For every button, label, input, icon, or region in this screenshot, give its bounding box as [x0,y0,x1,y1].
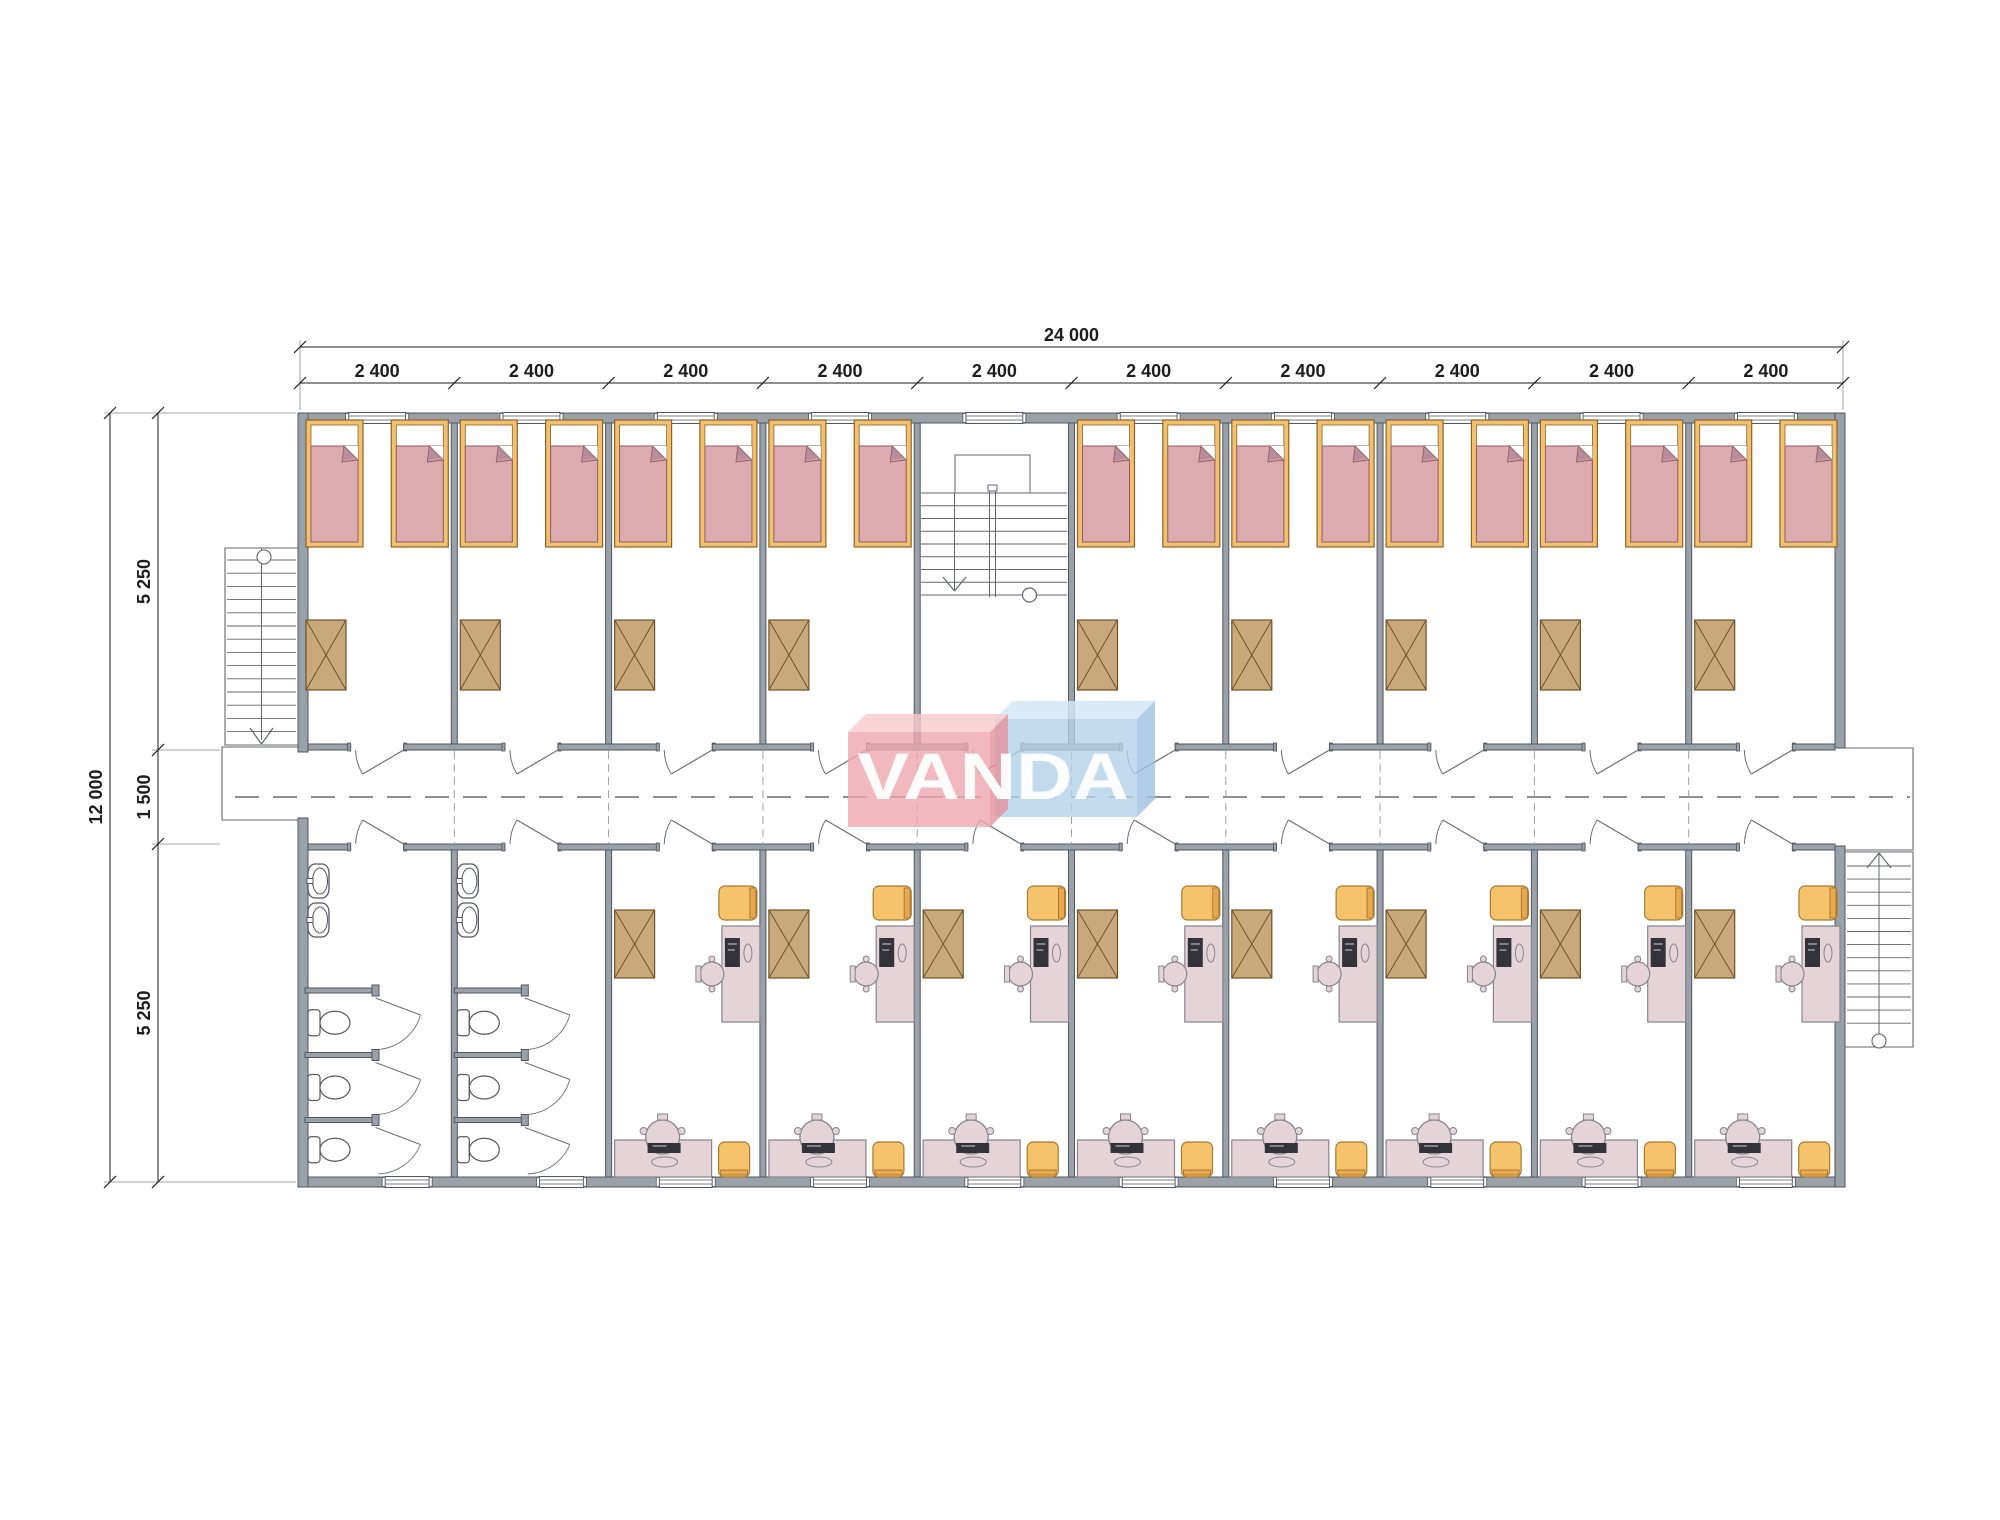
computer-screen [802,1143,835,1153]
stall-door-arc [379,1145,421,1175]
orange-chair [719,1142,750,1177]
wardrobe-table [306,620,346,690]
stair-start-circle [1023,588,1037,602]
corridor-wall-north [1175,744,1276,750]
bed [769,420,826,547]
window-south [1739,1177,1792,1188]
orange-chair [719,886,757,920]
chair-headrest [1738,1114,1748,1120]
door-jamb [1428,743,1431,751]
corridor-wall-south [1484,844,1585,850]
stall-door-arc [528,1015,570,1050]
dimension-label-depth-segment: 1 500 [134,774,154,819]
door-jamb [1273,743,1276,751]
window-jamb [1484,1178,1487,1187]
chair-back [721,1170,748,1175]
chair-back [1467,966,1472,982]
corridor-wall-north [558,744,659,750]
desk-vertical [722,926,760,1022]
door-leaf-top-room [1597,750,1638,774]
window-jamb [583,1178,586,1187]
corridor-wall-south [308,844,351,850]
corridor-wall-south [712,844,813,850]
window-jamb [1175,1178,1178,1187]
stair-down-arrow [250,728,262,744]
computer-screen [1111,1143,1144,1153]
door-swing-arc [510,820,517,844]
stair-start-circle [1872,1034,1886,1048]
bathroom [454,864,570,1174]
bed [700,420,757,547]
chair-headrest [966,1114,976,1120]
toilet [308,1137,350,1163]
chair-headrest [1429,1114,1439,1120]
door-swing-arc [1281,750,1288,774]
door-jamb [502,743,505,751]
keyboard [1423,1157,1449,1167]
partition-wall-bottom-row [451,850,457,1177]
window-jamb [1023,414,1026,423]
stall-door-arc [379,1080,421,1115]
bed [1078,420,1135,547]
chair-headrest [1583,1114,1593,1120]
keyboard [1361,944,1369,962]
stall-partition [305,1118,375,1123]
keyboard [1670,944,1678,962]
toilet [308,1010,350,1036]
door-jamb [656,843,659,851]
floor-plan-canvas: 24 0002 4002 4002 4002 4002 4002 4002 40… [0,0,2000,1520]
chair-back [1159,966,1164,982]
stall-door-arc [528,1080,570,1115]
keyboard [806,1157,832,1167]
wardrobe-table [1540,910,1580,978]
orange-chair [1028,886,1066,920]
door-jamb [1428,843,1431,851]
window-south [814,1177,867,1188]
chair-back [1830,888,1836,918]
corridor-wall-north [1638,744,1739,750]
orange-chair [1336,886,1374,920]
door-jamb [1736,743,1739,751]
keyboard [1269,1157,1295,1167]
keyboard [1732,1157,1758,1167]
window-jamb [382,1178,385,1187]
door-leaf-bottom-room [1288,820,1329,844]
window-jamb [429,1178,432,1187]
door-swing-arc [1281,820,1288,844]
partition-wall-bottom-row [1223,850,1229,1177]
partition-wall-bottom-row [760,850,766,1177]
chair-back [1005,966,1010,982]
wardrobe-table [1386,620,1426,690]
partition-wall-top-row [760,423,766,744]
chair-back [1059,888,1065,918]
floor-plan: 24 0002 4002 4002 4002 4002 4002 4002 40… [0,0,2000,1520]
door-swing-arc [1436,750,1443,774]
desk-vertical [1031,926,1069,1022]
chair-back [1676,888,1682,918]
stall-door-post [521,1115,528,1126]
chair-back [1801,1170,1828,1175]
bed [1386,420,1443,547]
corridor-wall-north [712,744,813,750]
chair-back [1776,966,1781,982]
window-jamb [1428,1178,1431,1187]
desk-bottom [1695,1114,1792,1177]
stair-start-circle [257,550,271,564]
dimension-label-module: 2 400 [1589,361,1634,381]
dimension-label-total-width: 24 000 [1044,325,1099,345]
chair-back [1646,1170,1673,1175]
office-chair [1313,956,1341,992]
sink-tap [456,918,462,923]
stall-partition [305,1053,375,1058]
dimension-label-module: 2 400 [972,361,1017,381]
window-jamb [811,1178,814,1187]
sink-tap [307,918,313,923]
stair-down-arrow [943,577,955,591]
stall-door-post [521,985,528,996]
office-chair [850,956,878,992]
wardrobe-table [769,620,809,690]
stall-partition [454,1118,524,1123]
dimension-label-depth-segment: 5 250 [134,990,154,1035]
corridor-wall-north [404,744,505,750]
orange-chair [1490,886,1528,920]
window-jamb [712,1178,715,1187]
wardrobe-table [1232,620,1272,690]
door-leaf-top-room [1288,750,1329,774]
window-jamb [1638,1178,1641,1187]
orange-chair [1644,1142,1675,1177]
stall-partition [454,1053,524,1058]
stall-door-leaf [525,1128,570,1145]
dimension-label-depth-segment: 5 250 [134,559,154,604]
window-south [659,1177,712,1188]
chair-back [904,888,910,918]
stall-door-leaf [525,1063,570,1080]
dimension-label-total-depth: 12 000 [86,769,106,824]
window-south [385,1177,429,1188]
dimension-label-module: 2 400 [1280,361,1325,381]
door-jamb [811,743,814,751]
vanda-logo: VANDA [848,701,1155,827]
stall-door-post [521,1050,528,1061]
dimension-label-module: 2 400 [663,361,708,381]
orange-chair [1182,886,1220,920]
computer-screen [1805,938,1820,967]
keyboard [744,944,752,962]
bed [1540,420,1597,547]
dimension-label-module: 2 400 [1743,361,1788,381]
logo-text: VANDA [857,739,1129,813]
window-jamb [1736,1178,1739,1187]
partition-wall-top-row [914,423,920,744]
window-south [968,1177,1021,1188]
chair-back [1338,1170,1365,1175]
partition-wall-bottom-row [606,850,612,1177]
bed [1695,420,1752,547]
door-swing-arc [1744,750,1751,774]
orange-chair [1799,1142,1830,1177]
chair-back [1521,888,1527,918]
bed [391,420,448,547]
door-leaf-top-room [1443,750,1484,774]
office-chair [1159,956,1187,992]
wardrobe-table [615,620,655,690]
computer-screen [648,1143,681,1153]
computer-screen [1573,1143,1606,1153]
sink [307,864,329,898]
keyboard [960,1157,986,1167]
door-jamb [1119,843,1122,851]
door-swing-arc [1744,820,1751,844]
toilet [457,1137,499,1163]
door-jamb [811,843,814,851]
desk-bottom [1078,1114,1175,1177]
orange-chair [1182,1142,1213,1177]
window-jamb [1021,1178,1024,1187]
keyboard [1053,944,1061,962]
door-leaf-bottom-room [1751,820,1792,844]
computer-screen [1651,938,1666,967]
door-jamb [656,743,659,751]
chair-back [1029,1170,1056,1175]
window-jamb [965,1178,968,1187]
keyboard [1515,944,1523,962]
partition-wall-bottom-row [1069,850,1075,1177]
desk-bottom [1386,1114,1483,1177]
stall-door-leaf [376,1128,421,1145]
chair-back [850,966,855,982]
chair-back [875,1170,902,1175]
stall-door-post [372,1050,379,1061]
computer-screen [879,938,894,967]
chair-back [1622,966,1627,982]
door-swing-arc [819,820,826,844]
stair-down-arrow [955,577,967,591]
corridor-wall-south [404,844,505,850]
corridor-wall-south [1638,844,1739,850]
partition-wall-top-row [1223,423,1229,744]
door-jamb [1273,843,1276,851]
chair-back [1492,1170,1519,1175]
wardrobe-table [1078,910,1118,978]
office-chair [696,956,724,992]
wardrobe-table [1540,620,1580,690]
chair-headrest [1275,1114,1285,1120]
stair-down-arrow [262,728,274,744]
bed [1780,420,1837,547]
wardrobe-table [1695,620,1735,690]
office-chair [1622,956,1650,992]
keyboard [1577,1157,1603,1167]
chair-back [696,966,701,982]
computer-screen [1419,1143,1452,1153]
chair-back [1367,888,1373,918]
partition-wall-top-row [451,423,457,744]
partition-wall-top-row [1531,423,1537,744]
stall-door-arc [528,1145,570,1175]
partition-wall-top-row [1686,423,1692,744]
door-jamb [1582,843,1585,851]
door-jamb [348,743,351,751]
stall-door-leaf [376,1063,421,1080]
window-north [966,413,1023,424]
desk-bottom [769,1114,866,1177]
orange-chair [873,1142,904,1177]
partition-wall-bottom-row [1531,850,1537,1177]
corridor-wall-north [308,744,351,750]
corridor-wall-north [1792,744,1835,750]
door-swing-arc [664,820,671,844]
dimension-label-module: 2 400 [818,361,863,381]
toilet [457,1010,499,1036]
door-swing-arc [356,750,363,774]
door-jamb [965,843,968,851]
desk-bottom [1232,1114,1329,1177]
corridor-wall-south [1175,844,1276,850]
door-swing-arc [1590,820,1597,844]
corridor-wall-north [1329,744,1430,750]
entry-landing-right [1845,748,1913,850]
door-jamb [348,843,351,851]
dimension-label-module: 2 400 [509,361,554,381]
dimension-label-module: 2 400 [1126,361,1171,381]
desk-bottom [1540,1114,1637,1177]
window-jamb [867,1178,870,1187]
wardrobe-table [1386,910,1426,978]
wardrobe-table [769,910,809,978]
stall-partition [305,988,375,993]
corridor-wall-south [867,844,968,850]
window-south [539,1177,583,1188]
door-swing-arc [664,750,671,774]
keyboard [1207,944,1215,962]
stall-door-post [372,1115,379,1126]
bed [546,420,603,547]
chair-headrest [658,1114,668,1120]
wardrobe-table [1695,910,1735,978]
orange-chair [1027,1142,1058,1177]
desk-vertical [1802,926,1840,1022]
exterior-stair-right [1845,748,1913,1048]
bathroom [305,864,421,1174]
bed [1471,420,1528,547]
partition-wall-bottom-row [1377,850,1383,1177]
office-chair [1776,956,1804,992]
window-jamb [963,414,966,423]
computer-screen [1728,1143,1761,1153]
door-swing-arc [356,820,363,844]
computer-screen [1265,1143,1298,1153]
wardrobe-table [460,620,500,690]
door-jamb [1736,843,1739,851]
orange-chair [873,886,911,920]
exterior-stair-left [222,548,298,820]
window-jamb [1273,1178,1276,1187]
wardrobe-table [1078,620,1118,690]
chair-back [750,888,756,918]
office-chair [1005,956,1033,992]
bed [306,420,363,547]
corridor-wall-south [1792,844,1835,850]
door-swing-arc [1590,750,1597,774]
door-leaf-top-room [671,750,712,774]
door-swing-arc [1436,820,1443,844]
stall-partition [454,988,524,993]
sink [307,903,329,937]
computer-screen [1342,938,1357,967]
bed [1626,420,1683,547]
window-south [1585,1177,1638,1188]
window-jamb [1119,1178,1122,1187]
computer-screen [956,1143,989,1153]
corridor-wall-south [558,844,659,850]
door-leaf-bottom-room [1443,820,1484,844]
window-jamb [1792,1178,1795,1187]
sink [456,864,478,898]
desk-vertical [1493,926,1531,1022]
window-south [1431,1177,1484,1188]
keyboard [1115,1157,1141,1167]
orange-chair [1336,1142,1367,1177]
bed [1317,420,1374,547]
desk-vertical [876,926,914,1022]
bed [615,420,672,547]
door-leaf-top-room [363,750,404,774]
keyboard [652,1157,678,1167]
computer-screen [725,938,740,967]
bed [1232,420,1289,547]
door-leaf-bottom-room [671,820,712,844]
wardrobe-table [615,910,655,978]
stall-door-post [372,985,379,996]
bed [460,420,517,547]
wardrobe-table [1232,910,1272,978]
corridor-wall-south [1329,844,1430,850]
computer-screen [1188,938,1203,967]
toilet [457,1075,499,1101]
chair-headrest [1121,1114,1131,1120]
chair-headrest [812,1114,822,1120]
desk-vertical [1185,926,1223,1022]
window-jamb [1582,1178,1585,1187]
door-leaf-bottom-room [517,820,558,844]
partition-wall-bottom-row [1686,850,1692,1177]
sink-tap [456,879,462,884]
keyboard [898,944,906,962]
stall-door-arc [379,1015,421,1050]
chair-back [1213,888,1219,918]
door-leaf-bottom-room [1597,820,1638,844]
corridor-wall-south [1021,844,1122,850]
desk-bottom [615,1114,712,1177]
bed [854,420,911,547]
computer-screen [1034,938,1049,967]
toilet [308,1075,350,1101]
chair-back [1184,1170,1211,1175]
stall-door-leaf [376,998,421,1015]
window-jamb [656,1178,659,1187]
orange-chair [1645,886,1683,920]
office-chair [1467,956,1495,992]
door-swing-arc [1127,820,1134,844]
desk-vertical [1648,926,1686,1022]
corridor-wall-north [1484,744,1585,750]
bed [1163,420,1220,547]
